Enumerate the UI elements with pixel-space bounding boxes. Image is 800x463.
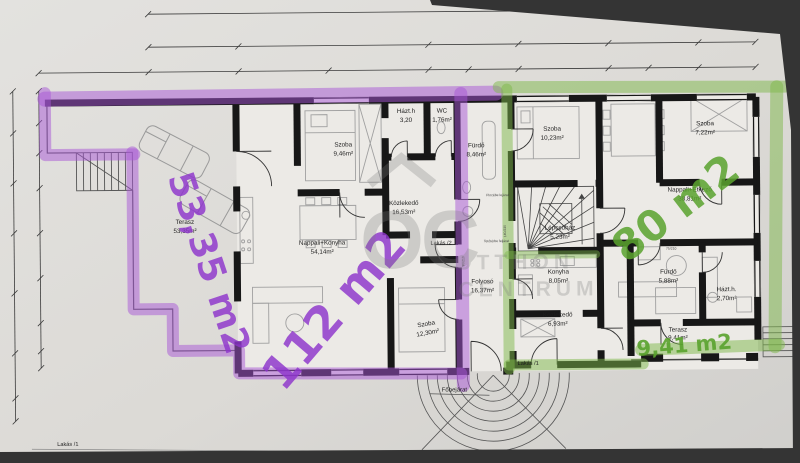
watermark-word2: CENTRUM bbox=[458, 277, 598, 301]
watermark-word1: OTTHON bbox=[455, 250, 574, 274]
stair-note-attic: Tetőtérbe feljárat bbox=[484, 239, 509, 243]
label-fobejarat: Főbejárat bbox=[442, 387, 468, 393]
door-tag-1: 140/230 bbox=[503, 225, 507, 237]
label-lakas1-door: Lakás /1 bbox=[518, 361, 539, 367]
floorplan-svg: 1000.5 bbox=[0, 0, 800, 463]
door-tag-3: 75/210 bbox=[666, 247, 677, 251]
label-lakas1-bottom: Lakás /1 bbox=[57, 442, 78, 448]
floorplan-photo: 1000.5 bbox=[0, 0, 800, 463]
stair-note-basement: Pincébe lejárat bbox=[486, 193, 509, 197]
